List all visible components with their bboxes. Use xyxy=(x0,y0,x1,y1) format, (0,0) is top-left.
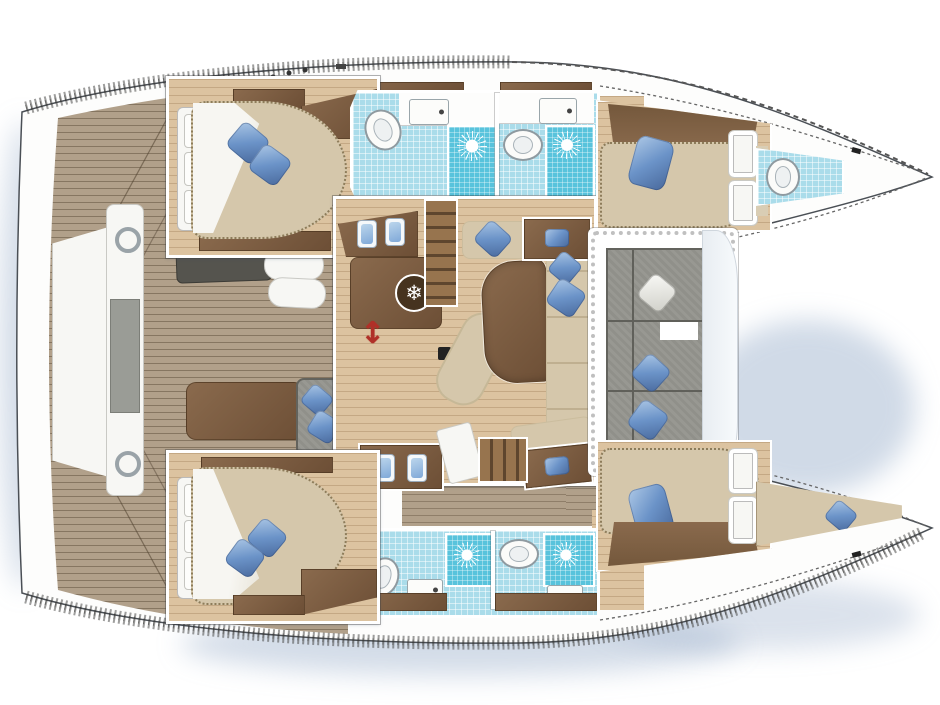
cushion-notch xyxy=(660,322,698,340)
cockpit-bench-brown xyxy=(186,382,304,440)
forward-cockpit xyxy=(588,228,738,476)
side-table-forward xyxy=(524,219,590,259)
white-pillow xyxy=(636,272,678,314)
accommodation-plan: ❄ ↕ xyxy=(0,0,940,705)
shower-rose-icon xyxy=(457,131,487,161)
beam-hatch-top xyxy=(115,227,141,253)
beam-gray-pad xyxy=(110,299,140,413)
toilet xyxy=(503,129,543,161)
cabinet-basin xyxy=(407,454,427,482)
blue-pillow xyxy=(630,352,672,394)
sink xyxy=(539,98,577,124)
sliding-door-arrow: ↕ xyxy=(360,319,385,349)
stairs-to-starboard-hull xyxy=(478,437,528,483)
shower-rose-icon xyxy=(454,542,480,568)
starboard-forward-cabin xyxy=(596,440,772,572)
bow-door xyxy=(728,180,758,226)
salon: ❄ ↕ xyxy=(333,196,597,486)
starboard-bow-berth xyxy=(756,476,908,546)
starboard-aft-cabin xyxy=(166,450,380,624)
aft-beam xyxy=(106,204,144,496)
galley-sink xyxy=(357,220,377,248)
sink xyxy=(409,99,449,125)
bow-door xyxy=(728,448,758,494)
catamaran-floor-plan: ❄ ↕ xyxy=(0,0,940,705)
galley-sink-counter xyxy=(338,211,418,257)
shower-rose-icon xyxy=(553,131,581,159)
blue-cushion xyxy=(544,456,570,476)
bow-door xyxy=(728,496,758,544)
port-bow-head xyxy=(756,148,844,206)
bow-door xyxy=(728,130,758,178)
port-forward-cabin xyxy=(596,100,772,232)
cabinet xyxy=(233,595,305,615)
stairs-to-port-hull xyxy=(424,199,458,307)
side-table-aft xyxy=(522,444,592,489)
forward-sunpad xyxy=(702,230,738,476)
cabinet-wedge xyxy=(301,569,377,615)
dining-table xyxy=(480,259,552,384)
cockpit-seat-white xyxy=(267,277,326,310)
starboard-bathrooms xyxy=(356,528,600,618)
toilet xyxy=(766,158,800,196)
toilet xyxy=(499,539,539,569)
blue-pillow xyxy=(823,498,858,533)
bath-cabinet xyxy=(495,593,597,611)
shower-stall xyxy=(543,533,595,587)
galley-sink xyxy=(385,218,405,246)
transom-platform xyxy=(52,226,112,478)
forward-cockpit-cushions xyxy=(606,248,704,462)
shower-rose-icon xyxy=(553,542,579,568)
blue-cushion xyxy=(545,229,569,247)
shower-stall xyxy=(445,533,493,587)
beam-hatch-bottom xyxy=(115,451,141,477)
